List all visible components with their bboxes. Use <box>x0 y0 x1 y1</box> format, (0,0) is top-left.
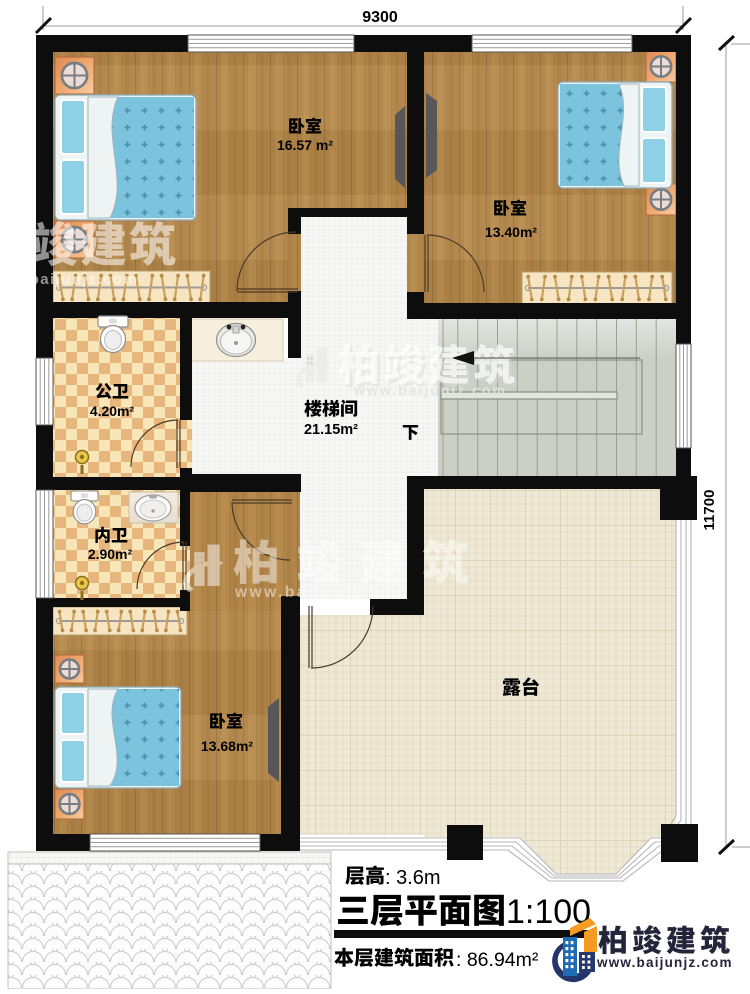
svg-text:www.baijunjz.com: www.baijunjz.com <box>596 955 733 970</box>
svg-text:2.90m²: 2.90m² <box>88 546 133 562</box>
svg-text:.com: .com <box>0 476 29 492</box>
svg-text:www.baijunjz.com: www.baijunjz.com <box>0 271 138 288</box>
svg-text:16.57 m²: 16.57 m² <box>277 137 333 153</box>
svg-text:21.15m²: 21.15m² <box>304 422 358 438</box>
svg-text:www.baijunjz.com: www.baijunjz.com <box>353 382 507 398</box>
svg-text:9300: 9300 <box>362 9 398 26</box>
svg-text:4.20m²: 4.20m² <box>90 403 135 419</box>
svg-text:13.68m²: 13.68m² <box>201 738 253 754</box>
svg-text:13.40m²: 13.40m² <box>485 224 537 240</box>
svg-text:: 3.6m: : 3.6m <box>385 867 441 889</box>
svg-text:11700: 11700 <box>701 490 718 531</box>
svg-text:www.baijunjz.com: www.baijunjz.com <box>234 584 409 601</box>
svg-text:: 86.94m²: : 86.94m² <box>456 949 539 971</box>
